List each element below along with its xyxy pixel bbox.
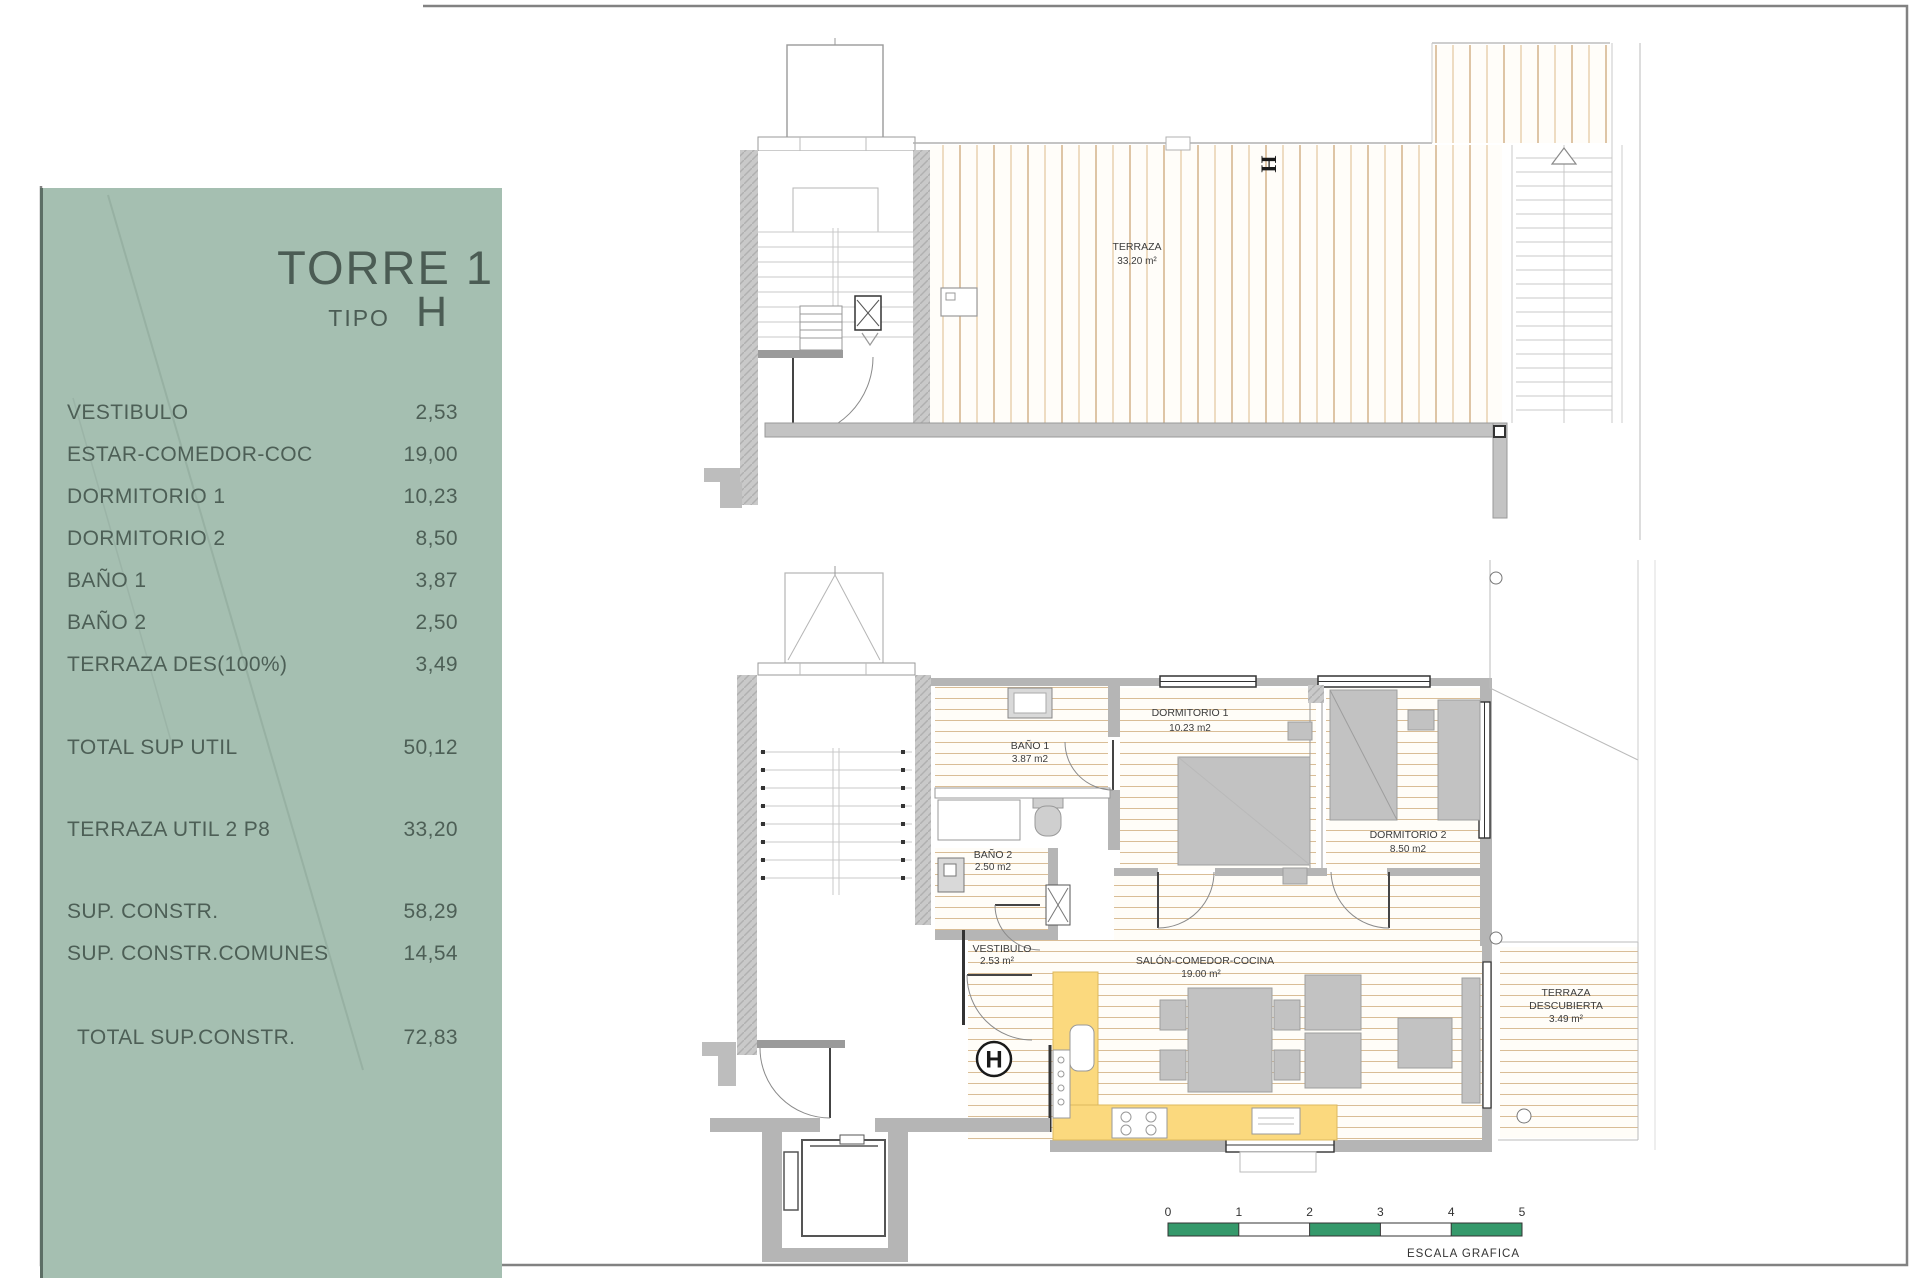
area-row-bano-1: BAÑO 13,87 — [67, 569, 458, 593]
lower-section-mark-h: H — [977, 1042, 1011, 1076]
svg-text:3.49 m²: 3.49 m² — [1549, 1014, 1584, 1025]
total-sup-util-row: TOTAL SUP UTIL50,12 — [67, 736, 458, 760]
elevator — [710, 1118, 908, 1262]
upper-terrace-area: 33,20 m² — [1117, 256, 1157, 267]
area-row-bano-2: BAÑO 22,50 — [67, 611, 458, 635]
area-row-vestibulo: VESTIBULO2,53 — [67, 401, 458, 425]
area-row-estar: ESTAR-COMEDOR-COC19,00 — [67, 443, 458, 467]
upper-plan: TERRAZA 33,20 m² H — [704, 38, 1640, 540]
area-row-terraza-des: TERRAZA DES(100%)3,49 — [67, 653, 458, 677]
label-bano-2: BAÑO 2 — [974, 848, 1013, 861]
scale-tick-2: 2 — [1306, 1205, 1313, 1219]
panel-watermark — [43, 188, 502, 1278]
label-dormitorio-1: DORMITORIO 1 — [1152, 707, 1229, 719]
label-dormitorio-2: DORMITORIO 2 — [1370, 829, 1447, 841]
tipo-value: H — [416, 288, 447, 337]
upper-terrace-deck — [930, 145, 1502, 423]
drawing-sheet: TERRAZA 33,20 m² H — [0, 0, 1920, 1280]
terraza-util-row: TERRAZA UTIL 2 P833,20 — [67, 818, 458, 842]
label-terraza-descubierta: TERRAZA — [1541, 987, 1590, 999]
upper-terrace-label: TERRAZA — [1112, 241, 1161, 253]
upper-section-mark-h: H — [1257, 155, 1282, 172]
scale-tick-4: 4 — [1448, 1205, 1455, 1219]
label-salon: SALÓN-COMEDOR-COCINA — [1136, 954, 1274, 967]
scale-tick-3: 3 — [1377, 1205, 1384, 1219]
sup-constr-row: SUP. CONSTR.58,29 — [67, 900, 458, 924]
total-sup-constr-row: TOTAL SUP.CONSTR.72,83 — [77, 1026, 458, 1050]
svg-text:H: H — [985, 1047, 1002, 1074]
scale-tick-1: 1 — [1235, 1205, 1242, 1219]
svg-text:DESCUBIERTA: DESCUBIERTA — [1529, 1000, 1603, 1012]
label-bano-1: BAÑO 1 — [1011, 739, 1050, 752]
panel-tipo: TIPO H — [328, 288, 447, 337]
summary-panel: TORRE 1 TIPO H VESTIBULO2,53 ESTAR-COMED… — [40, 188, 502, 1278]
svg-text:8.50 m2: 8.50 m2 — [1390, 844, 1427, 855]
svg-text:2.53 m²: 2.53 m² — [980, 956, 1015, 967]
graphic-scale: 0 1 2 3 4 5 ESCALA GRAFICA — [1165, 1205, 1526, 1260]
scale-tick-0: 0 — [1165, 1205, 1172, 1219]
svg-text:3.87 m2: 3.87 m2 — [1012, 754, 1049, 765]
panel-title: TORRE 1 — [277, 240, 494, 295]
lower-plan: H DORMITORIO 1 10.23 m2 DORMITORIO 2 8.5… — [702, 560, 1655, 1262]
sup-constr-comunes-row: SUP. CONSTR.COMUNES14,54 — [67, 942, 458, 966]
scale-tick-5: 5 — [1519, 1205, 1526, 1219]
svg-text:2.50 m2: 2.50 m2 — [975, 862, 1012, 873]
tipo-label: TIPO — [328, 305, 390, 332]
label-vestibulo: VESTIBULO — [973, 943, 1032, 955]
area-row-dormitorio-2: DORMITORIO 28,50 — [67, 527, 458, 551]
svg-text:19.00 m²: 19.00 m² — [1181, 969, 1221, 980]
scale-label: ESCALA GRAFICA — [1407, 1248, 1520, 1260]
area-row-dormitorio-1: DORMITORIO 110,23 — [67, 485, 458, 509]
svg-text:10.23 m2: 10.23 m2 — [1169, 723, 1211, 734]
